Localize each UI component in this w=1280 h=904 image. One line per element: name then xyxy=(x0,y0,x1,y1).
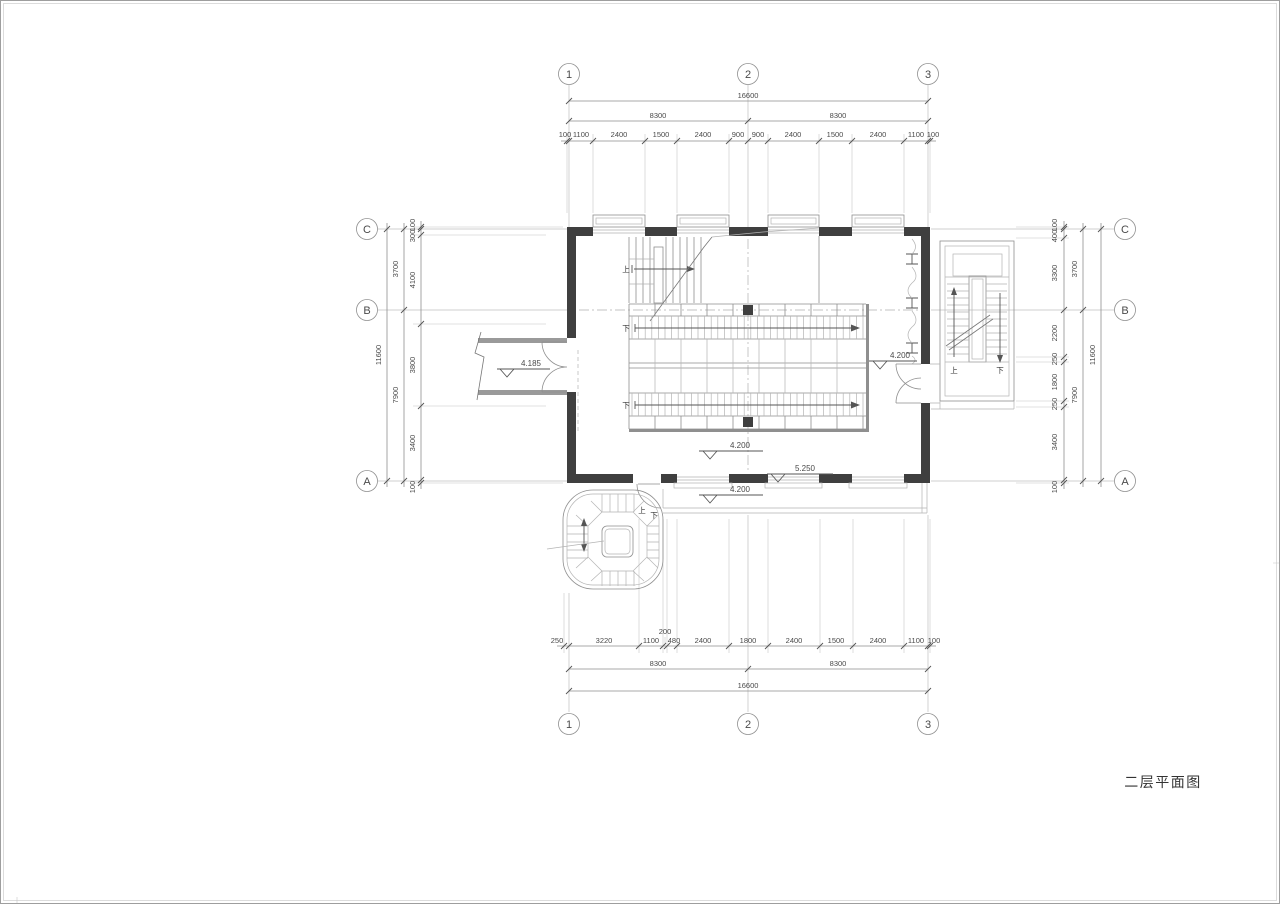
dim-label: 1100 xyxy=(908,130,924,139)
dim-label: 2400 xyxy=(870,636,887,645)
dim-label: 1500 xyxy=(828,636,845,645)
corridor-bridge xyxy=(475,332,578,432)
dim-label: 900 xyxy=(732,130,745,139)
grid-bubble-label: 3 xyxy=(925,69,931,81)
grid-bubble-label: 3 xyxy=(925,719,931,731)
dim-label: 2400 xyxy=(611,130,628,139)
dim-label: 100 xyxy=(408,219,417,232)
ramp-down-label: 下 xyxy=(622,324,630,333)
dim-label: 2400 xyxy=(785,130,802,139)
dim-label: 1800 xyxy=(1050,374,1059,391)
seating-area: 下 下 xyxy=(622,304,869,432)
dim-label: 11600 xyxy=(1088,345,1097,365)
grid-lines xyxy=(378,85,1114,712)
dim-label: 100 xyxy=(1050,219,1059,232)
dimensions-bottom: 250 3220 1100 200 480 2400 1800 2400 150… xyxy=(551,519,941,694)
dim-label: 8300 xyxy=(830,659,847,668)
dim-label: 16600 xyxy=(738,91,759,100)
dim-label: 8300 xyxy=(830,111,847,120)
grid-bubble-label: B xyxy=(363,305,370,317)
grid-bubble-label: 2 xyxy=(745,69,751,81)
grid-bubble-label: C xyxy=(363,224,371,236)
dim-label: 3700 xyxy=(1070,261,1079,278)
dim-label: 250 xyxy=(551,636,564,645)
dim-label: 100 xyxy=(927,130,940,139)
steel-columns xyxy=(906,239,918,364)
dimensions-right: 100 400 3300 2200 250 1800 250 3400 100 … xyxy=(1016,219,1104,494)
dim-label: 3400 xyxy=(1050,434,1059,451)
dim-label: 3800 xyxy=(408,357,417,374)
column xyxy=(743,417,753,427)
grid-bubble-label: A xyxy=(1121,476,1129,488)
dim-label: 900 xyxy=(752,130,765,139)
dim-label: 1100 xyxy=(643,636,659,645)
stair-up-label: 上 xyxy=(950,366,958,375)
stair-up-label: 上 xyxy=(622,265,630,274)
stair-down-label: 下 xyxy=(650,511,658,520)
dim-label: 7900 xyxy=(1070,387,1079,404)
sheet-marks xyxy=(17,563,1280,904)
dim-label: 400 xyxy=(1050,230,1059,243)
level-label: 5.250 xyxy=(795,464,816,473)
dim-label: 4100 xyxy=(408,272,417,289)
grid-bubble-label: B xyxy=(1121,305,1128,317)
floor-plan-drawing: 100 1100 2400 1500 2400 900 900 2400 150… xyxy=(1,1,1280,904)
dim-label: 1500 xyxy=(653,130,670,139)
dim-label: 3700 xyxy=(391,261,400,278)
dim-label: 100 xyxy=(408,481,417,494)
grid-bubbles: 1 2 3 1 2 3 C B A C B A xyxy=(357,64,1136,735)
dim-label: 100 xyxy=(559,130,572,139)
dim-label: 3220 xyxy=(596,636,613,645)
dim-label: 1100 xyxy=(573,130,589,139)
dim-label: 300 xyxy=(408,230,417,243)
dim-label: 480 xyxy=(668,636,681,645)
dim-label: 3400 xyxy=(408,435,417,452)
ramp-down-label: 下 xyxy=(622,401,630,410)
level-label: 4.200 xyxy=(730,441,751,450)
dim-label: 16600 xyxy=(738,681,759,690)
dim-label: 1800 xyxy=(740,636,757,645)
dim-label: 8300 xyxy=(650,111,667,120)
dim-label: 100 xyxy=(928,636,941,645)
dimensions-top: 100 1100 2400 1500 2400 900 900 2400 150… xyxy=(559,91,940,213)
windows-south xyxy=(674,477,907,488)
grid-bubble-label: A xyxy=(363,476,371,488)
exterior-stair-east: 上 下 xyxy=(930,241,1014,409)
dim-label: 2200 xyxy=(1050,325,1059,342)
dim-label: 2400 xyxy=(870,130,887,139)
dim-label: 200 xyxy=(659,627,672,636)
level-label: 4.185 xyxy=(521,359,542,368)
dim-label: 1500 xyxy=(827,130,844,139)
dim-label: 2400 xyxy=(695,130,712,139)
grid-bubble-label: C xyxy=(1121,224,1129,236)
dim-label: 7900 xyxy=(391,387,400,404)
dim-label: 1100 xyxy=(908,636,924,645)
dim-label: 3300 xyxy=(1050,265,1059,282)
dim-label: 100 xyxy=(1050,481,1059,494)
stair-up-label: 上 xyxy=(638,506,646,515)
drawing-sheet: 100 1100 2400 1500 2400 900 900 2400 150… xyxy=(0,0,1280,904)
column xyxy=(743,305,753,315)
dim-label: 250 xyxy=(1050,353,1059,366)
level-label: 4.200 xyxy=(730,485,751,494)
dim-label: 8300 xyxy=(650,659,667,668)
grid-bubble-label: 2 xyxy=(745,719,751,731)
grid-bubble-label: 1 xyxy=(566,69,572,81)
dim-label: 11600 xyxy=(374,345,383,365)
grid-bubble-label: 1 xyxy=(566,719,572,731)
dim-label: 250 xyxy=(1050,398,1059,411)
dim-label: 2400 xyxy=(786,636,803,645)
dim-label: 2400 xyxy=(695,636,712,645)
dimensions-left: 100 300 4100 3800 3400 100 3700 7900 116… xyxy=(374,219,563,494)
spiral-stair: 上 下 xyxy=(547,490,663,589)
stair-down-label: 下 xyxy=(996,366,1004,375)
door-east xyxy=(896,364,921,403)
interior-stair: 上 xyxy=(622,228,819,321)
drawing-title: 二层平面图 xyxy=(1124,774,1202,790)
level-label: 4.200 xyxy=(890,351,911,360)
